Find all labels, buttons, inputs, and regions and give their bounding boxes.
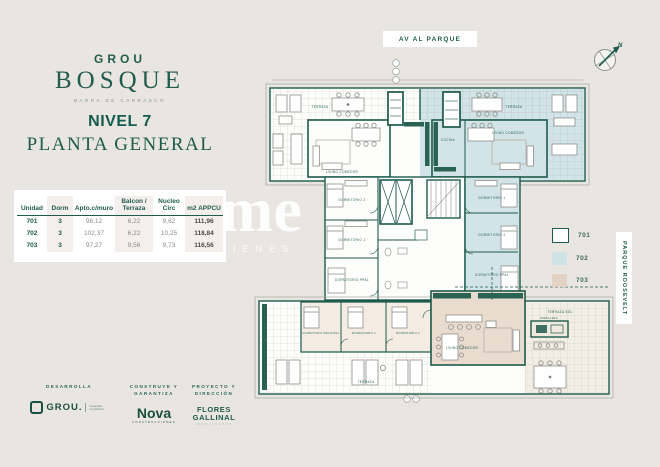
legend-row-701: 701: [552, 228, 590, 243]
page: { "brand": { "top": "GROU", "main": "BOS…: [0, 0, 660, 467]
brand-grou: GROU: [35, 52, 205, 66]
street-label-text: AV AL PARQUE: [399, 36, 461, 43]
fg-line2: GALLINAL: [178, 414, 250, 422]
label-living-701: LIVING COMEDOR: [326, 170, 359, 174]
col-dorm: Dorm: [47, 196, 73, 215]
planter-strip: [262, 304, 267, 390]
table-row-702: 702 3 102,37 6,22 10,25 118,84: [17, 228, 223, 240]
col-m2: m2 APPCU: [185, 196, 223, 215]
label-dorm1-702: DORMITORIO 1: [479, 196, 506, 200]
legend-label-703: 703: [576, 277, 588, 284]
col-unidad: Unidad: [17, 196, 47, 215]
legend-row-703: 703: [552, 274, 590, 287]
legend-swatch-701: [552, 228, 569, 243]
footer-block-proyecto: PROYECTO Y DIRECCIÓN FLORES GALLINAL ARQ…: [178, 383, 250, 426]
title-nivel: NIVEL 7: [25, 113, 215, 131]
footer-role-proyecto: PROYECTO Y DIRECCIÓN: [178, 383, 250, 398]
elevator-core: [380, 180, 412, 224]
footer-role-desarrolla: DESARROLLA: [30, 383, 108, 390]
footer-block-desarrolla: DESARROLLA GROU. Desarrollos inmobiliari…: [30, 383, 108, 414]
brand-logo: GROU BOSQUE BARRA DE CARRASCO: [35, 52, 205, 103]
page-title: NIVEL 7 PLANTA GENERAL: [25, 113, 215, 156]
label-living-703: LIVING COMEDOR: [446, 346, 479, 350]
flores-gallinal-logo: FLORES GALLINAL ARQUITECTOS: [178, 406, 250, 427]
units-table-card: Unidad Dorm Apto.c/muro Balcon / Terraza…: [14, 190, 226, 262]
col-nucleo: Nucleo Circ: [153, 196, 185, 215]
label-terraza-703: TERRAZA: [358, 380, 376, 384]
brand-tagline: BARRA DE CARRASCO: [35, 98, 205, 103]
street-label-parque-roosevelt: PARQUE ROOSEVELT: [616, 232, 632, 324]
label-cocina-702: COCINA: [441, 138, 456, 142]
unit-legend: 701 702 703: [552, 228, 590, 296]
legend-row-702: 702: [552, 252, 590, 265]
units-table: Unidad Dorm Apto.c/muro Balcon / Terraza…: [17, 196, 223, 252]
street-label-av-al-parque: AV AL PARQUE: [383, 31, 477, 47]
legend-label-702: 702: [576, 255, 588, 262]
table-header-row: Unidad Dorm Apto.c/muro Balcon / Terraza…: [17, 196, 223, 215]
label-terraza-702: TERRAZA: [506, 105, 524, 109]
legend-label-701: 701: [578, 232, 590, 239]
fg-subtext: ARQUITECTOS: [178, 422, 250, 426]
label-dorm1-703: DORMITORIO 1: [352, 331, 376, 335]
col-apto: Apto.c/muro: [73, 196, 115, 215]
label-dorm2-703: DORMITORIO 2: [396, 331, 420, 335]
brand-bosque: BOSQUE: [35, 67, 205, 95]
grou-logo: GROU. Desarrollos inmobiliarios: [30, 401, 108, 414]
label-dormppal-701: DORMITORIO PPAL: [335, 278, 369, 282]
label-dorm2-702: DORMITORIO 2: [479, 233, 506, 237]
label-dorm2-701: DORMITORIO 2: [339, 198, 366, 202]
col-balcon: Balcon / Terraza: [115, 196, 153, 215]
legend-swatch-703: [552, 274, 567, 287]
compass-icon: N: [595, 43, 624, 71]
grou-wordmark: GROU.: [46, 402, 82, 413]
label-parrillero: PARRILLERO: [540, 317, 558, 320]
label-dorm1-701: DORMITORIO 1: [339, 238, 366, 242]
table-row-703: 703 3 97,27 9,56 9,73 116,56: [17, 240, 223, 252]
compass-north-label: N: [618, 43, 623, 49]
stairs: [427, 180, 460, 218]
label-dormprincipal-703: DORMITORIO PRINCIPAL: [302, 331, 339, 335]
legend-swatch-702: [552, 252, 567, 265]
upper-plate: [266, 84, 589, 185]
label-living-702: LIVING COMEDOR: [492, 131, 525, 135]
label-terraza-701: TERRAZA: [312, 105, 330, 109]
street-label-text-vertical: PARQUE ROOSEVELT: [621, 241, 627, 315]
logo-divider: [85, 403, 86, 412]
label-terraza-sol: TERRAZA SOL: [547, 310, 572, 314]
title-planta: PLANTA GENERAL: [25, 134, 215, 156]
table-row-701: 701 3 96,12 6,22 9,62 111,96: [17, 215, 223, 228]
grou-logo-icon: [30, 401, 43, 414]
unit-703-bedrooms: [301, 302, 431, 352]
grou-logo-subtext: Desarrollos inmobiliarios: [89, 405, 108, 411]
label-dormppal-702: DORMITORIO PPAL: [475, 273, 509, 277]
parrillero-grill: [531, 321, 568, 337]
